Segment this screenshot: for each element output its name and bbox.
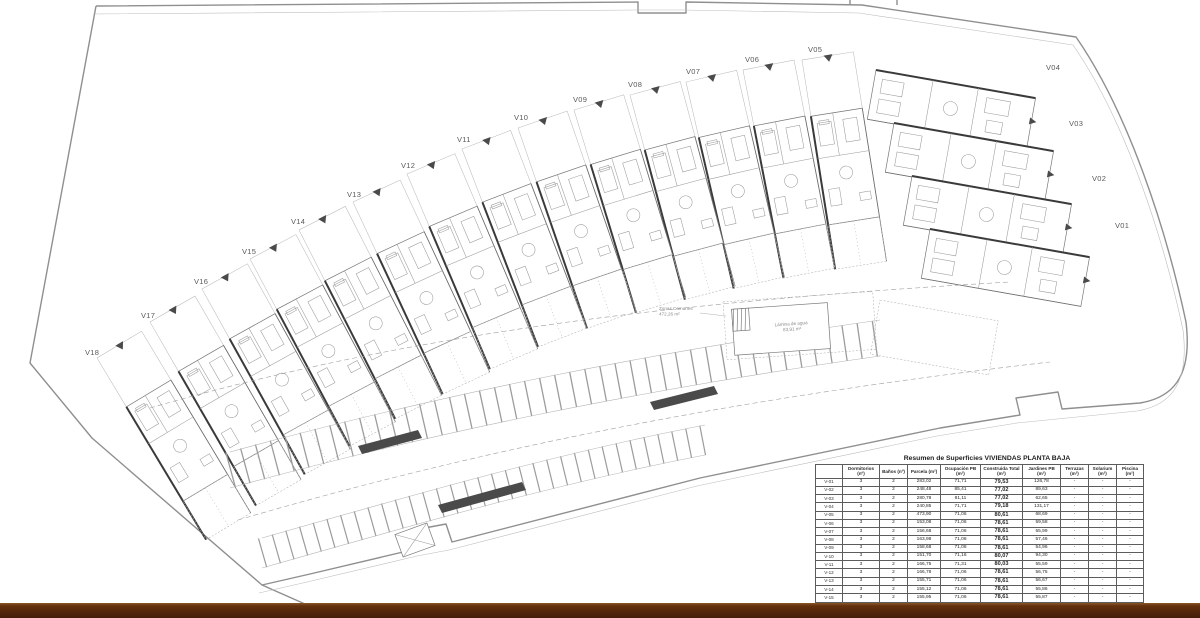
table-row-label: V-01 xyxy=(816,478,843,486)
table-header-cell: Terrazas (m²) xyxy=(1061,465,1089,479)
table-cell: 62,65 xyxy=(1023,495,1061,503)
villa-label: V13 xyxy=(347,190,361,199)
table-row-label: V-08 xyxy=(816,536,843,544)
villa-label: V04 xyxy=(1046,63,1060,72)
villa-label: V06 xyxy=(745,55,759,64)
summary-table-section: Resumen de Superficies VIVIENDAS PLANTA … xyxy=(815,455,1145,618)
page: Lámina de agua 83,91 m² Zonas Comunes 47… xyxy=(0,0,1200,618)
table-header-cell: Parcela (m²) xyxy=(908,465,941,479)
table-cell: 3 xyxy=(843,511,880,519)
table-cell: 78,61 xyxy=(981,577,1023,585)
table-cell: - xyxy=(1089,569,1117,577)
table-cell: 55,86 xyxy=(1023,586,1061,594)
common-zones-label: Zonas Comunes 472,26 m² xyxy=(659,306,694,317)
table-cell: 54,96 xyxy=(1023,544,1061,552)
table-cell: 71,71 xyxy=(941,503,981,511)
terraced-villas-band xyxy=(96,51,886,540)
table-cell: - xyxy=(1061,544,1089,552)
table-cell: 78,61 xyxy=(981,569,1023,577)
table-cell: 240,85 xyxy=(908,503,941,511)
table-header-cell: Ocupación PB (m²) xyxy=(941,465,981,479)
table-cell: 85,41 xyxy=(941,486,981,494)
table-row: V-1532155,9571,0678,6155,87--- xyxy=(816,594,1144,602)
table-cell: 2 xyxy=(880,528,908,536)
annotation-leader xyxy=(700,313,726,316)
villa-label: V18 xyxy=(85,348,99,357)
table-row: V-0532473,9071,0680,6168,69--- xyxy=(816,511,1144,519)
table-row: V-1432155,1271,0678,6155,86--- xyxy=(816,586,1144,594)
table-cell: 2 xyxy=(880,594,908,602)
table-row: V-1232166,7871,0678,6156,75--- xyxy=(816,569,1144,577)
table-cell: 71,06 xyxy=(941,594,981,602)
table-row-label: V-15 xyxy=(816,594,843,602)
table-cell: - xyxy=(1089,544,1117,552)
table-cell: 2 xyxy=(880,577,908,585)
table-cell: - xyxy=(1089,511,1117,519)
table-cell: 68,69 xyxy=(1023,511,1061,519)
table-cell: 166,78 xyxy=(908,569,941,577)
table-cell: 3 xyxy=(843,569,880,577)
table-cell: 71,06 xyxy=(941,544,981,552)
villa-label: V02 xyxy=(1092,174,1106,183)
table-row: V-0432240,8571,7179,18131,17--- xyxy=(816,503,1144,511)
table-row: V-0732156,6871,0678,6155,99--- xyxy=(816,528,1144,536)
table-row-label: V-04 xyxy=(816,503,843,511)
table-cell: 55,87 xyxy=(1023,594,1061,602)
table-cell: - xyxy=(1117,577,1144,585)
table-cell: 71,06 xyxy=(941,577,981,585)
table-cell: 2 xyxy=(880,561,908,569)
table-cell: 80,03 xyxy=(981,561,1023,569)
table-cell: 55,59 xyxy=(1023,561,1061,569)
table-cell: 2 xyxy=(880,536,908,544)
table-row: V-1132166,7571,3180,0355,59--- xyxy=(816,561,1144,569)
table-row-label: V-06 xyxy=(816,519,843,527)
right-block-terrace xyxy=(870,300,998,375)
table-cell: 3 xyxy=(843,478,880,486)
table-cell: - xyxy=(1117,536,1144,544)
table-cell: - xyxy=(1117,544,1144,552)
planter-wedge xyxy=(650,386,718,410)
table-cell: 78,61 xyxy=(981,594,1023,602)
table-row-label: V-11 xyxy=(816,561,843,569)
summary-table-title: Resumen de Superficies VIVIENDAS PLANTA … xyxy=(829,455,1145,462)
summary-table-headrow: Dormitorios (nº)Baños (nº)Parcela (m²)Oc… xyxy=(816,465,1144,479)
table-row: V-0332280,7881,1177,0262,65--- xyxy=(816,495,1144,503)
table-cell: - xyxy=(1089,495,1117,503)
table-cell: 71,06 xyxy=(941,569,981,577)
table-cell: - xyxy=(1089,486,1117,494)
table-cell: 2 xyxy=(880,552,908,560)
table-cell: 71,06 xyxy=(941,586,981,594)
pool-area: Lámina de agua 83,91 m² xyxy=(723,291,877,359)
table-cell: 3 xyxy=(843,503,880,511)
villa-label: V15 xyxy=(242,247,256,256)
table-header-cell: Dormitorios (nº) xyxy=(843,465,880,479)
table-cell: 57,46 xyxy=(1023,536,1061,544)
table-cell: 79,18 xyxy=(981,503,1023,511)
table-cell: - xyxy=(1089,586,1117,594)
table-cell: 280,78 xyxy=(908,495,941,503)
table-cell: 155,12 xyxy=(908,586,941,594)
villa-label: V05 xyxy=(808,45,822,54)
technical-box xyxy=(395,523,435,557)
table-cell: 283,02 xyxy=(908,478,941,486)
right-villas-block xyxy=(867,70,1094,375)
table-cell: 2 xyxy=(880,544,908,552)
table-cell: - xyxy=(1117,486,1144,494)
table-cell: - xyxy=(1061,552,1089,560)
table-cell: - xyxy=(1089,594,1117,602)
table-row-label: V-13 xyxy=(816,577,843,585)
table-cell: 77,02 xyxy=(981,495,1023,503)
table-cell: 248,48 xyxy=(908,486,941,494)
table-cell: - xyxy=(1061,478,1089,486)
table-cell: - xyxy=(1089,577,1117,585)
table-cell: 56,67 xyxy=(1023,577,1061,585)
table-header-cell: Baños (nº) xyxy=(880,465,908,479)
table-row-label: V-10 xyxy=(816,552,843,560)
table-cell: 71,06 xyxy=(941,528,981,536)
table-cell: 2 xyxy=(880,569,908,577)
table-cell: 155,95 xyxy=(908,594,941,602)
table-cell: 155,71 xyxy=(908,577,941,585)
table-cell: - xyxy=(1089,528,1117,536)
table-cell: 78,61 xyxy=(981,544,1023,552)
table-cell: 89,63 xyxy=(1023,486,1061,494)
table-cell: - xyxy=(1089,478,1117,486)
table-cell: 153,08 xyxy=(908,519,941,527)
table-cell: 55,99 xyxy=(1023,528,1061,536)
table-cell: 80,07 xyxy=(981,552,1023,560)
table-header-cell: Jardines PB (m²) xyxy=(1023,465,1061,479)
table-cell: 3 xyxy=(843,594,880,602)
table-cell: 3 xyxy=(843,577,880,585)
table-cell: 473,90 xyxy=(908,511,941,519)
table-cell: 77,02 xyxy=(981,486,1023,494)
table-cell: - xyxy=(1089,561,1117,569)
table-cell: - xyxy=(1117,519,1144,527)
table-cell: 2 xyxy=(880,511,908,519)
table-cell: 131,17 xyxy=(1023,503,1061,511)
table-cell: - xyxy=(1061,486,1089,494)
table-row-label: V-09 xyxy=(816,544,843,552)
table-cell: - xyxy=(1089,519,1117,527)
table-header-cell: Piscina (m²) xyxy=(1117,465,1144,479)
table-row-label: V-14 xyxy=(816,586,843,594)
table-cell: 78,61 xyxy=(981,528,1023,536)
table-cell: 158,68 xyxy=(908,544,941,552)
table-cell: - xyxy=(1117,586,1144,594)
table-cell: 94,30 xyxy=(1023,552,1061,560)
villa-label: V09 xyxy=(573,95,587,104)
table-row: V-0932158,6871,0678,6154,96--- xyxy=(816,544,1144,552)
villa-label: V11 xyxy=(457,135,471,144)
table-cell: - xyxy=(1117,569,1144,577)
table-cell: - xyxy=(1117,503,1144,511)
table-cell: 80,61 xyxy=(981,511,1023,519)
table-header-cell: Construida Total (m²) xyxy=(981,465,1023,479)
table-cell: 3 xyxy=(843,586,880,594)
table-cell: - xyxy=(1061,577,1089,585)
table-cell: - xyxy=(1061,519,1089,527)
table-cell: 78,61 xyxy=(981,519,1023,527)
table-row-label: V-12 xyxy=(816,569,843,577)
summary-table-body: V-0132283,0271,7179,53126,78---V-0232248… xyxy=(816,478,1144,618)
table-cell: - xyxy=(1061,528,1089,536)
table-cell: 2 xyxy=(880,495,908,503)
table-cell: 2 xyxy=(880,519,908,527)
table-cell: 151,70 xyxy=(908,552,941,560)
table-row: V-0832163,9871,0678,6157,46--- xyxy=(816,536,1144,544)
table-cell: - xyxy=(1089,552,1117,560)
villa-label: V01 xyxy=(1115,221,1129,230)
table-cell: - xyxy=(1061,586,1089,594)
table-cell: - xyxy=(1061,511,1089,519)
table-cell: 2 xyxy=(880,486,908,494)
table-cell: 163,98 xyxy=(908,536,941,544)
table-header-cell xyxy=(816,465,843,479)
table-cell: - xyxy=(1089,503,1117,511)
table-cell: 71,06 xyxy=(941,536,981,544)
table-cell: - xyxy=(1117,552,1144,560)
table-cell: - xyxy=(1117,561,1144,569)
table-cell: - xyxy=(1117,528,1144,536)
villa-label: V08 xyxy=(628,80,642,89)
table-row: V-0632153,0871,0678,6159,58--- xyxy=(816,519,1144,527)
table-row: V-0132283,0271,7179,53126,78--- xyxy=(816,478,1144,486)
table-cell: 3 xyxy=(843,519,880,527)
table-cell: 79,53 xyxy=(981,478,1023,486)
table-cell: - xyxy=(1089,536,1117,544)
table-cell: 166,75 xyxy=(908,561,941,569)
table-row-label: V-07 xyxy=(816,528,843,536)
table-row-label: V-05 xyxy=(816,511,843,519)
table-cell: 3 xyxy=(843,495,880,503)
table-cell: 59,58 xyxy=(1023,519,1061,527)
table-cell: 3 xyxy=(843,486,880,494)
table-cell: 3 xyxy=(843,544,880,552)
table-row: V-1032151,7071,1680,0794,30--- xyxy=(816,552,1144,560)
footer-bar xyxy=(0,603,1200,618)
table-cell: 3 xyxy=(843,536,880,544)
table-cell: - xyxy=(1117,594,1144,602)
table-cell: 3 xyxy=(843,552,880,560)
table-row: V-1332155,7171,0678,6156,67--- xyxy=(816,577,1144,585)
table-row-label: V-02 xyxy=(816,486,843,494)
table-cell: 2 xyxy=(880,503,908,511)
table-cell: 2 xyxy=(880,478,908,486)
table-row-label: V-03 xyxy=(816,495,843,503)
table-cell: 71,31 xyxy=(941,561,981,569)
table-cell: 2 xyxy=(880,586,908,594)
table-cell: - xyxy=(1117,478,1144,486)
villa-label: V12 xyxy=(401,161,415,170)
table-cell: 71,71 xyxy=(941,478,981,486)
table-cell: - xyxy=(1061,495,1089,503)
villa-label: V16 xyxy=(194,277,208,286)
villa-label: V10 xyxy=(514,113,528,122)
table-cell: 56,75 xyxy=(1023,569,1061,577)
villa-label: V14 xyxy=(291,217,305,226)
table-cell: 78,61 xyxy=(981,536,1023,544)
table-cell: 156,68 xyxy=(908,528,941,536)
table-cell: - xyxy=(1061,569,1089,577)
table-cell: 81,11 xyxy=(941,495,981,503)
table-cell: - xyxy=(1061,503,1089,511)
table-cell: 71,06 xyxy=(941,519,981,527)
table-cell: - xyxy=(1061,561,1089,569)
villa-label: V17 xyxy=(141,311,155,320)
summary-table: Dormitorios (nº)Baños (nº)Parcela (m²)Oc… xyxy=(815,464,1144,618)
table-cell: 71,16 xyxy=(941,552,981,560)
table-cell: 71,06 xyxy=(941,511,981,519)
table-cell: - xyxy=(1117,511,1144,519)
table-cell: 78,61 xyxy=(981,586,1023,594)
villa-label: V03 xyxy=(1069,119,1083,128)
table-cell: - xyxy=(1061,594,1089,602)
table-row: V-0232248,4885,4177,0289,63--- xyxy=(816,486,1144,494)
pool-steps xyxy=(732,308,750,331)
table-cell: 126,78 xyxy=(1023,478,1061,486)
villa-label: V07 xyxy=(686,67,700,76)
table-header-cell: Solarium (m²) xyxy=(1089,465,1117,479)
table-cell: - xyxy=(1061,536,1089,544)
table-cell: - xyxy=(1117,495,1144,503)
table-cell: 3 xyxy=(843,528,880,536)
table-cell: 3 xyxy=(843,561,880,569)
